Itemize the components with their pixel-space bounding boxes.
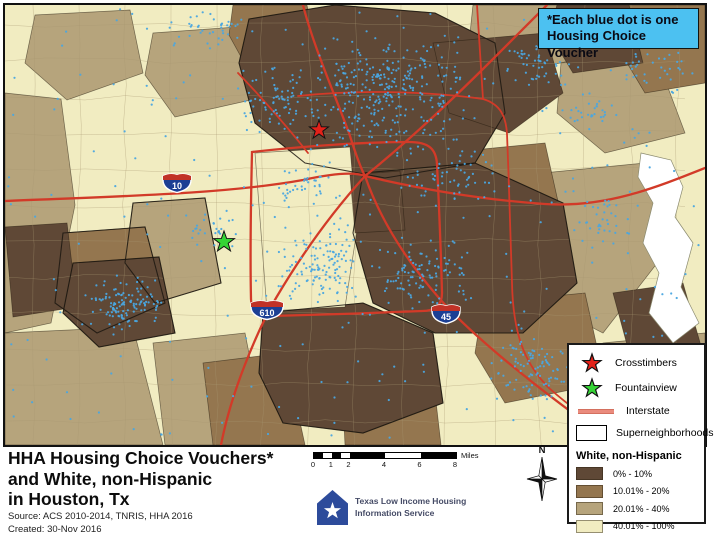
house-star-icon	[316, 489, 349, 526]
choropleth-class-row: 0% - 10%	[576, 465, 704, 483]
legend-item-interstate: Interstate	[576, 400, 704, 422]
swatch-pale-yellow	[576, 520, 603, 533]
class-label: 10.01% - 20%	[613, 486, 670, 496]
legend: Crosstimbers Fountainview Interstate Sup…	[567, 343, 706, 524]
scale-tick: 2	[342, 460, 356, 469]
outline-box-icon	[576, 425, 607, 441]
choropleth-header: White, non-Hispanic	[576, 450, 704, 462]
org-logo: Texas Low Income Housing Information Ser…	[316, 489, 466, 526]
scale-tick: 8	[448, 460, 462, 469]
legend-label: Crosstimbers	[615, 357, 677, 369]
scale-tick: 4	[377, 460, 391, 469]
created-note: Created: 30-Nov 2016	[8, 524, 273, 536]
scale-bar: 0 1 2 4 6 8 Miles	[313, 451, 488, 473]
interstate-line-icon	[578, 409, 614, 414]
class-label: 20.01% - 40%	[613, 504, 670, 514]
scale-tick: 6	[413, 460, 427, 469]
legend-item-crosstimbers: Crosstimbers	[576, 350, 704, 375]
scale-tick: 0	[306, 460, 320, 469]
map-title-line-2: and White, non-Hispanic	[8, 469, 273, 490]
scale-bar-strip	[313, 452, 457, 459]
page: 10 610 45 *Each blue dot is one Housing …	[0, 0, 714, 536]
org-name: Texas Low Income Housing Information Ser…	[355, 496, 466, 520]
swatch-dark-brown	[576, 467, 603, 480]
legend-item-superneighborhoods: Superneighborhoods	[576, 422, 704, 444]
banner-line-2: Housing Choice Voucher	[547, 28, 698, 61]
red-star-icon	[581, 352, 603, 374]
choropleth-class-row: 20.01% - 40%	[576, 500, 704, 518]
map-title-line-1: HHA Housing Choice Vouchers*	[8, 448, 273, 469]
scale-unit-label: Miles	[461, 451, 479, 460]
map-title-line-3: in Houston, Tx	[8, 489, 273, 510]
class-label: 0% - 10%	[613, 469, 652, 479]
legend-item-fountainview: Fountainview	[576, 375, 704, 400]
scale-tick: 1	[324, 460, 338, 469]
org-name-line-1: Texas Low Income Housing	[355, 496, 466, 508]
legend-label: Superneighborhoods	[616, 427, 714, 439]
shield-610-label: 610	[259, 308, 274, 318]
org-name-line-2: Information Service	[355, 508, 466, 520]
source-note: Source: ACS 2010-2014, TNRIS, HHA 2016	[8, 511, 273, 523]
north-label: N	[523, 446, 561, 455]
legend-label: Fountainview	[615, 382, 677, 394]
banner-line-1: *Each blue dot is one	[547, 12, 698, 28]
legend-label: Interstate	[626, 405, 670, 417]
choropleth-class-row: 40.01% - 100%	[576, 518, 704, 536]
shield-10-label: 10	[172, 181, 182, 191]
fountainview-marker-icon	[214, 231, 235, 251]
map-note-banner: *Each blue dot is one Housing Choice Vou…	[538, 8, 699, 49]
compass-star-icon	[524, 455, 560, 503]
swatch-mid-brown	[576, 485, 603, 498]
title-block: HHA Housing Choice Vouchers* and White, …	[8, 448, 273, 536]
choropleth-class-row: 10.01% - 20%	[576, 483, 704, 501]
shield-45-label: 45	[441, 312, 451, 322]
interstate-shield-10: 10	[163, 174, 191, 193]
north-arrow: N	[523, 446, 561, 504]
green-star-icon	[581, 377, 603, 399]
class-label: 40.01% - 100%	[613, 521, 675, 531]
swatch-tan	[576, 502, 603, 515]
